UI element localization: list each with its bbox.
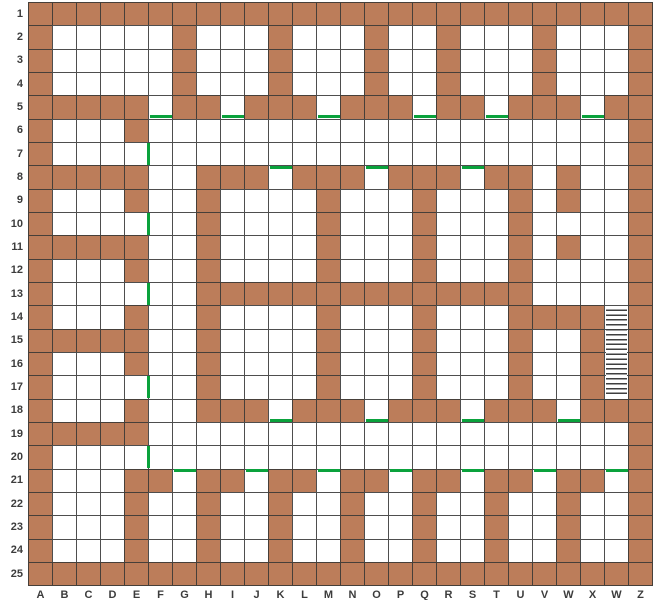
floor-cell <box>268 189 293 213</box>
wall-cell <box>28 259 53 283</box>
floor-cell <box>292 352 317 376</box>
wall-cell <box>532 562 557 586</box>
wall-cell <box>268 49 293 73</box>
wall-cell <box>28 189 53 213</box>
floor-cell <box>292 235 317 259</box>
col-label: M <box>317 589 341 600</box>
floor-cell <box>340 49 365 73</box>
wall-cell <box>268 72 293 96</box>
floor-cell <box>340 235 365 259</box>
floor-cell <box>604 189 629 213</box>
floor-cell <box>292 305 317 329</box>
floor-cell <box>124 445 149 469</box>
wall-cell <box>628 329 653 353</box>
floor-cell <box>484 259 509 283</box>
wall-cell <box>28 562 53 586</box>
floor-cell <box>196 142 221 166</box>
floor-cell <box>244 305 269 329</box>
floor-cell <box>604 259 629 283</box>
floor-cell <box>436 422 461 446</box>
door-marker <box>462 166 484 169</box>
floor-cell <box>388 422 413 446</box>
wall-cell <box>436 282 461 306</box>
wall-cell <box>196 282 221 306</box>
floor-cell <box>100 189 125 213</box>
floor-cell <box>76 212 101 236</box>
wall-cell <box>628 469 653 493</box>
door-marker <box>150 115 172 118</box>
col-label: E <box>125 589 149 600</box>
wall-cell <box>412 515 437 539</box>
floor-cell <box>172 469 197 493</box>
floor-cell <box>580 282 605 306</box>
wall-cell <box>628 422 653 446</box>
floor-cell <box>364 375 389 399</box>
wall-cell <box>52 562 77 586</box>
floor-cell <box>52 492 77 516</box>
floor-cell <box>76 189 101 213</box>
door-marker <box>147 143 150 165</box>
floor-cell <box>172 142 197 166</box>
floor-cell <box>244 212 269 236</box>
row-label: 16 <box>0 352 23 375</box>
floor-cell <box>532 189 557 213</box>
door-marker <box>270 419 292 422</box>
floor-cell <box>532 235 557 259</box>
floor-cell <box>388 492 413 516</box>
floor-cell <box>268 375 293 399</box>
wall-cell <box>532 49 557 73</box>
floor-cell <box>76 469 101 493</box>
floor-cell <box>388 515 413 539</box>
col-label: U <box>509 589 533 600</box>
floor-cell <box>172 375 197 399</box>
hatched-stairs-area <box>606 306 627 397</box>
floor-cell <box>148 25 173 49</box>
floor-cell <box>52 259 77 283</box>
floor-cell <box>100 375 125 399</box>
wall-cell <box>340 95 365 119</box>
floor-cell <box>244 142 269 166</box>
floor-cell <box>244 49 269 73</box>
wall-cell <box>268 2 293 26</box>
floor-cell <box>148 259 173 283</box>
floor-cell <box>580 165 605 189</box>
wall-cell <box>508 95 533 119</box>
floor-cell <box>196 119 221 143</box>
floor-cell <box>340 305 365 329</box>
floor-cell <box>244 469 269 493</box>
floor-cell <box>100 305 125 329</box>
floor-cell <box>196 72 221 96</box>
wall-cell <box>196 189 221 213</box>
floor-cell <box>52 189 77 213</box>
wall-cell <box>436 469 461 493</box>
wall-cell <box>364 469 389 493</box>
row-label: 14 <box>0 305 23 328</box>
floor-cell <box>244 375 269 399</box>
floor-cell <box>100 515 125 539</box>
floor-cell <box>124 72 149 96</box>
wall-cell <box>340 282 365 306</box>
floor-cell <box>100 539 125 563</box>
wall-cell <box>28 282 53 306</box>
row-label: 17 <box>0 375 23 398</box>
floor-cell <box>292 212 317 236</box>
wall-cell <box>628 49 653 73</box>
floor-cell <box>316 539 341 563</box>
wall-cell <box>268 282 293 306</box>
floor-cell <box>604 422 629 446</box>
col-label: R <box>437 589 461 600</box>
floor-cell <box>388 212 413 236</box>
col-label: V <box>533 589 557 600</box>
floor-cell <box>316 49 341 73</box>
wall-cell <box>28 305 53 329</box>
floor-cell <box>292 539 317 563</box>
wall-cell <box>124 515 149 539</box>
floor-cell <box>532 329 557 353</box>
floor-cell <box>436 189 461 213</box>
floor-cell <box>244 445 269 469</box>
wall-cell <box>76 95 101 119</box>
floor-cell <box>244 72 269 96</box>
wall-cell <box>604 95 629 119</box>
floor-cell <box>244 259 269 283</box>
floor-cell <box>484 25 509 49</box>
wall-cell <box>28 165 53 189</box>
floor-cell <box>76 119 101 143</box>
floor-cell <box>268 445 293 469</box>
floor-cell <box>52 282 77 306</box>
floor-cell <box>580 515 605 539</box>
wall-cell <box>124 189 149 213</box>
row-label: 6 <box>0 119 23 142</box>
floor-cell <box>316 492 341 516</box>
door-marker <box>486 115 508 118</box>
wall-cell <box>556 165 581 189</box>
floor-cell <box>412 422 437 446</box>
wall-cell <box>148 469 173 493</box>
wall-cell <box>628 95 653 119</box>
floor-cell <box>508 422 533 446</box>
floor-cell <box>148 235 173 259</box>
floor-cell <box>604 165 629 189</box>
floor-cell <box>364 235 389 259</box>
wall-cell <box>412 539 437 563</box>
wall-cell <box>412 235 437 259</box>
floor-cell <box>268 119 293 143</box>
wall-cell <box>580 2 605 26</box>
floor-cell <box>52 49 77 73</box>
floor-cell <box>340 119 365 143</box>
floor-cell <box>124 49 149 73</box>
wall-cell <box>412 329 437 353</box>
floor-cell <box>580 259 605 283</box>
row-label: 13 <box>0 282 23 305</box>
wall-cell <box>316 399 341 423</box>
floor-cell <box>484 142 509 166</box>
wall-cell <box>268 562 293 586</box>
floor-cell <box>460 212 485 236</box>
wall-cell <box>148 562 173 586</box>
door-marker <box>270 166 292 169</box>
floor-cell <box>268 212 293 236</box>
floor-cell <box>148 492 173 516</box>
door-marker <box>582 115 604 118</box>
wall-cell <box>532 2 557 26</box>
wall-cell <box>28 142 53 166</box>
floor-cell <box>148 399 173 423</box>
wall-cell <box>28 422 53 446</box>
wall-cell <box>28 119 53 143</box>
floor-cell <box>388 445 413 469</box>
floor-cell <box>196 49 221 73</box>
floor-cell <box>316 25 341 49</box>
row-label: 18 <box>0 399 23 422</box>
floor-cell <box>292 422 317 446</box>
floor-cell <box>100 212 125 236</box>
floor-cell <box>100 399 125 423</box>
floor-cell <box>508 25 533 49</box>
floor-cell <box>388 469 413 493</box>
door-marker <box>147 213 150 235</box>
wall-cell <box>436 95 461 119</box>
floor-cell <box>484 352 509 376</box>
col-label: W <box>605 589 629 600</box>
floor-cell <box>172 119 197 143</box>
wall-cell <box>340 515 365 539</box>
wall-cell <box>28 25 53 49</box>
wall-cell <box>436 25 461 49</box>
wall-cell <box>316 235 341 259</box>
floor-cell <box>172 259 197 283</box>
floor-cell <box>580 422 605 446</box>
floor-cell <box>148 212 173 236</box>
wall-cell <box>28 212 53 236</box>
floor-cell <box>220 142 245 166</box>
floor-cell <box>604 49 629 73</box>
col-label: T <box>485 589 509 600</box>
floor-cell <box>364 142 389 166</box>
floor-cell <box>388 72 413 96</box>
floor-cell <box>220 352 245 376</box>
floor-cell <box>292 329 317 353</box>
floor-cell <box>172 352 197 376</box>
floor-cell <box>388 235 413 259</box>
wall-cell <box>628 119 653 143</box>
wall-cell <box>340 2 365 26</box>
floor-cell <box>388 142 413 166</box>
col-label: Z <box>629 589 653 600</box>
row-label: 1 <box>0 2 23 25</box>
wall-cell <box>196 2 221 26</box>
wall-cell <box>292 2 317 26</box>
door-marker <box>414 115 436 118</box>
wall-cell <box>460 95 485 119</box>
wall-cell <box>28 95 53 119</box>
floor-cell <box>460 165 485 189</box>
row-label: 3 <box>0 49 23 72</box>
wall-cell <box>220 469 245 493</box>
floor-cell <box>364 189 389 213</box>
floor-cell <box>388 259 413 283</box>
floor-cell <box>532 119 557 143</box>
door-marker <box>366 419 388 422</box>
wall-cell <box>76 422 101 446</box>
wall-cell <box>172 95 197 119</box>
wall-cell <box>412 259 437 283</box>
wall-cell <box>340 165 365 189</box>
floor-cell <box>460 492 485 516</box>
wall-cell <box>244 95 269 119</box>
wall-cell <box>124 492 149 516</box>
wall-cell <box>316 375 341 399</box>
floor-cell <box>52 305 77 329</box>
row-label: 19 <box>0 422 23 445</box>
wall-cell <box>268 25 293 49</box>
wall-cell <box>268 539 293 563</box>
floor-cell <box>220 329 245 353</box>
floor-cell <box>484 329 509 353</box>
floor-cell <box>100 72 125 96</box>
row-label: 11 <box>0 235 23 258</box>
floor-cell <box>148 305 173 329</box>
wall-cell <box>340 492 365 516</box>
floor-cell <box>148 515 173 539</box>
wall-cell <box>28 515 53 539</box>
wall-cell <box>244 282 269 306</box>
floor-cell <box>316 72 341 96</box>
wall-cell <box>52 95 77 119</box>
floor-cell <box>412 25 437 49</box>
wall-cell <box>316 282 341 306</box>
wall-cell <box>316 562 341 586</box>
door-marker <box>318 469 340 472</box>
row-label: 9 <box>0 189 23 212</box>
floor-cell <box>340 142 365 166</box>
wall-cell <box>364 562 389 586</box>
wall-cell <box>436 165 461 189</box>
wall-cell <box>196 399 221 423</box>
floor-cell <box>388 25 413 49</box>
wall-cell <box>268 515 293 539</box>
floor-cell <box>580 492 605 516</box>
wall-cell <box>220 562 245 586</box>
wall-cell <box>580 329 605 353</box>
floor-cell <box>508 119 533 143</box>
floor-cell <box>148 282 173 306</box>
wall-cell <box>508 329 533 353</box>
wall-cell <box>412 352 437 376</box>
wall-cell <box>52 422 77 446</box>
floor-cell <box>220 305 245 329</box>
floor-cell <box>340 329 365 353</box>
floor-cell <box>580 119 605 143</box>
floor-cell <box>244 352 269 376</box>
wall-cell <box>412 305 437 329</box>
wall-cell <box>364 95 389 119</box>
floor-cell <box>436 235 461 259</box>
floor-cell <box>52 539 77 563</box>
wall-cell <box>196 562 221 586</box>
row-label: 12 <box>0 259 23 282</box>
floor-cell <box>220 259 245 283</box>
row-label: 23 <box>0 515 23 538</box>
wall-cell <box>220 2 245 26</box>
floor-cell <box>388 305 413 329</box>
wall-cell <box>580 352 605 376</box>
wall-cell <box>484 515 509 539</box>
wall-cell <box>508 2 533 26</box>
floor-cell <box>556 25 581 49</box>
wall-cell <box>100 235 125 259</box>
floor-cell <box>532 142 557 166</box>
floor-cell <box>76 539 101 563</box>
wall-cell <box>292 165 317 189</box>
col-label: Q <box>413 589 437 600</box>
floor-cell <box>484 305 509 329</box>
floor-cell <box>340 445 365 469</box>
floor-cell <box>532 212 557 236</box>
wall-cell <box>196 539 221 563</box>
floor-cell <box>220 189 245 213</box>
floor-cell <box>100 259 125 283</box>
wall-cell <box>100 422 125 446</box>
floor-cell <box>220 375 245 399</box>
floor-cell <box>76 515 101 539</box>
floor-cell <box>556 445 581 469</box>
floor-cell <box>76 305 101 329</box>
floor-cell <box>52 25 77 49</box>
col-label: L <box>293 589 317 600</box>
wall-cell <box>484 399 509 423</box>
floor-cell <box>268 422 293 446</box>
wall-cell <box>316 189 341 213</box>
wall-cell <box>196 259 221 283</box>
wall-cell <box>196 375 221 399</box>
wall-cell <box>28 492 53 516</box>
row-label: 2 <box>0 25 23 48</box>
wall-cell <box>124 165 149 189</box>
floor-cell <box>220 25 245 49</box>
floor-cell <box>196 422 221 446</box>
floor-cell <box>340 352 365 376</box>
wall-cell <box>628 515 653 539</box>
floor-cell <box>580 445 605 469</box>
wall-cell <box>556 539 581 563</box>
floor-cell <box>100 142 125 166</box>
floor-cell <box>76 375 101 399</box>
row-label: 15 <box>0 329 23 352</box>
wall-cell <box>100 329 125 353</box>
wall-cell <box>508 235 533 259</box>
floor-cell <box>220 212 245 236</box>
wall-cell <box>604 399 629 423</box>
wall-cell <box>508 399 533 423</box>
floor-cell <box>508 72 533 96</box>
wall-cell <box>196 165 221 189</box>
door-marker <box>246 469 268 472</box>
floor-cell <box>412 119 437 143</box>
wall-cell <box>316 259 341 283</box>
wall-cell <box>508 305 533 329</box>
wall-cell <box>124 422 149 446</box>
floor-cell <box>364 165 389 189</box>
floor-cell <box>220 235 245 259</box>
floor-cell <box>532 445 557 469</box>
wall-cell <box>460 562 485 586</box>
